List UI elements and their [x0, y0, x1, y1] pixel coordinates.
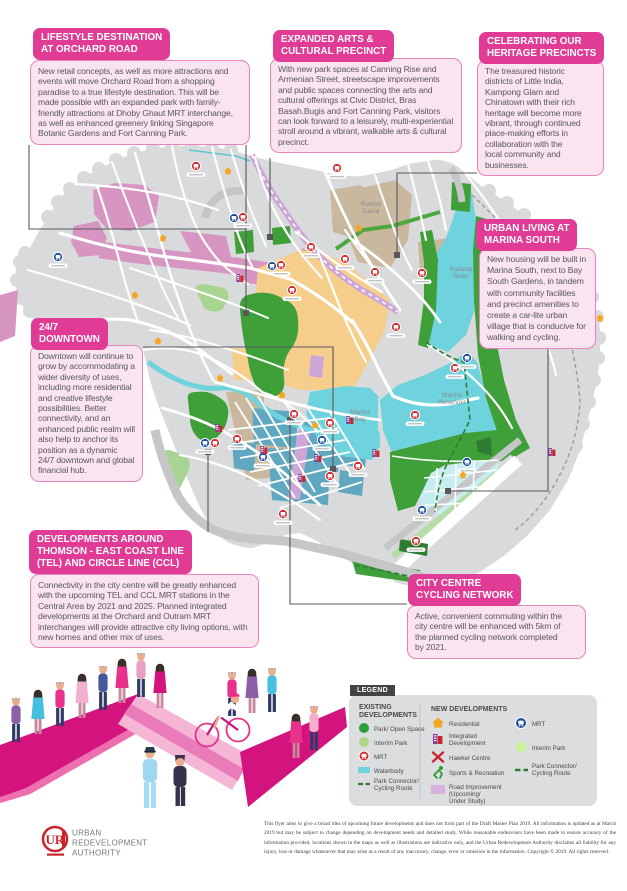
svg-text:Marina: Marina [350, 409, 370, 416]
svg-text:Bay: Bay [354, 416, 366, 423]
svg-text:Rochor: Rochor [361, 201, 383, 208]
svg-text:Interim Park: Interim Park [374, 740, 408, 747]
svg-text:URBAN: URBAN [72, 829, 102, 838]
svg-text:DEVELOPMENTS: DEVELOPMENTS [359, 712, 417, 719]
svg-text:REDEVELOPMENT: REDEVELOPMENT [72, 839, 147, 848]
svg-text:Residential: Residential [449, 721, 480, 728]
svg-text:Park/ Open Space: Park/ Open Space [374, 726, 425, 733]
svg-text:(Upcoming/: (Upcoming/ [449, 791, 481, 798]
svg-text:Cycling Route: Cycling Route [374, 785, 413, 792]
svg-text:Integrated: Integrated [449, 733, 477, 740]
svg-text:Sports & Recreation: Sports & Recreation [449, 770, 505, 777]
svg-text:Waterbody: Waterbody [374, 768, 405, 775]
svg-text:Marina: Marina [442, 392, 462, 399]
svg-text:Park Connector/: Park Connector/ [532, 763, 577, 770]
svg-text:Cycling Route: Cycling Route [532, 770, 571, 777]
svg-text:NEW DEVELOPMENTS: NEW DEVELOPMENTS [431, 706, 508, 713]
svg-text:UR: UR [46, 832, 65, 847]
svg-text:Canal: Canal [363, 208, 381, 215]
svg-text:Reservoir: Reservoir [438, 399, 467, 406]
svg-text:Kallang: Kallang [450, 266, 472, 273]
svg-text:AUTHORITY: AUTHORITY [72, 849, 121, 858]
svg-text:MRT: MRT [374, 754, 388, 761]
svg-text:Park Connector/: Park Connector/ [374, 778, 419, 785]
svg-text:River: River [453, 273, 469, 280]
svg-text:EXISTING: EXISTING [359, 704, 392, 711]
svg-text:Road Improvement: Road Improvement [449, 784, 502, 791]
svg-text:Hawker Centre: Hawker Centre [449, 755, 491, 762]
svg-text:Under Study): Under Study) [449, 798, 485, 805]
svg-text:Interim Park: Interim Park [532, 745, 566, 752]
svg-text:MRT: MRT [532, 721, 546, 728]
svg-text:Development: Development [449, 740, 486, 747]
